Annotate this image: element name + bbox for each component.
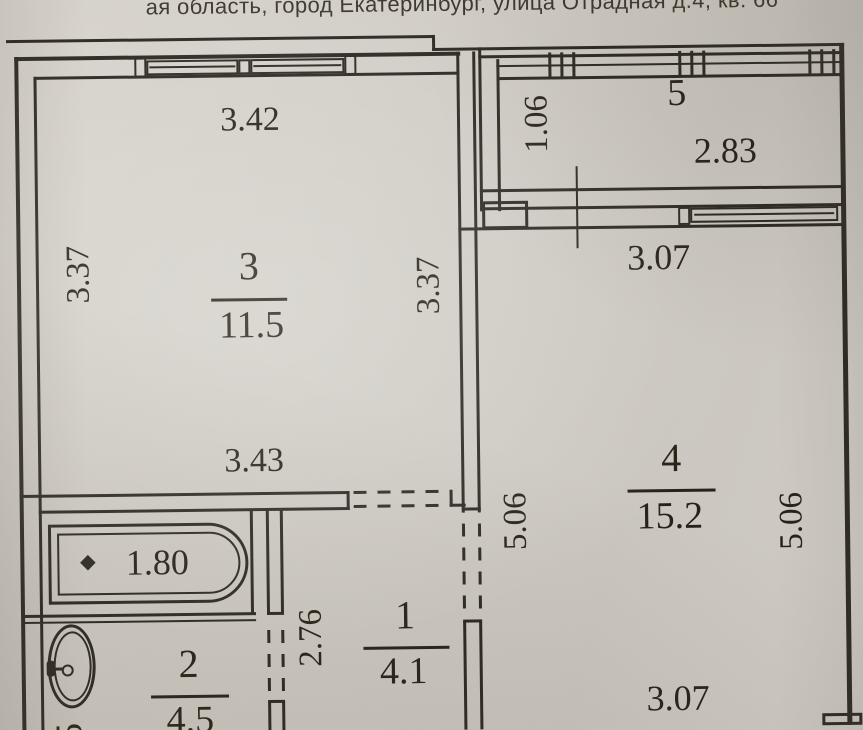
room2-fraction-bar xyxy=(151,694,229,698)
wall-left-outer xyxy=(14,57,26,730)
room4-fraction-bar xyxy=(628,489,716,493)
dim-room4-top: 3.07 xyxy=(598,238,718,277)
door-opening-room2 xyxy=(267,630,271,696)
wall-endcap xyxy=(347,491,350,510)
glazing-mullion-icon xyxy=(572,52,575,78)
dim-room3-top: 3.42 xyxy=(190,101,310,138)
window-jamb-icon xyxy=(134,57,146,77)
room3-fraction-bar xyxy=(211,298,287,302)
room3-area: 11.5 xyxy=(191,305,311,346)
dim-balcony-depth: 1.06 xyxy=(519,69,555,179)
room1-area: 4.1 xyxy=(354,652,454,693)
dim-balcony-width: 2.83 xyxy=(665,132,785,171)
balcony-number: 5 xyxy=(646,74,706,115)
glazing-mullion-icon xyxy=(820,49,823,75)
room1-fraction-bar xyxy=(363,646,449,650)
wall-room2-room1-b xyxy=(280,510,284,614)
dim-room3-left: 3.37 xyxy=(61,219,97,329)
door-opening-room2 xyxy=(281,630,285,696)
wall-room3-bottom-outer xyxy=(20,491,350,498)
wall-bath-partition xyxy=(23,612,256,618)
door-jamb xyxy=(450,504,466,507)
wall-room3-room4-a xyxy=(456,52,465,513)
wall-bath-right xyxy=(250,510,254,614)
room2-area: 4.5 xyxy=(140,700,240,730)
window-jamb-icon xyxy=(678,207,690,225)
wall-room2-room1-a xyxy=(268,702,271,730)
room1-number: 1 xyxy=(375,594,436,637)
glazing-mullion-icon xyxy=(560,52,563,78)
dim-edge-partial: 5 xyxy=(50,712,90,730)
dim-room4-left: 5.06 xyxy=(498,466,534,576)
door-opening-room3 xyxy=(354,490,450,494)
room4-number: 4 xyxy=(641,437,702,480)
room3-number: 3 xyxy=(209,245,290,288)
dim-room4-right: 5.06 xyxy=(774,466,810,576)
wall-room3-bottom-inner xyxy=(39,507,350,514)
balcony-glazing-line xyxy=(478,51,843,58)
floor-plan: ая область, город Екатеринбург, улица От… xyxy=(0,0,863,730)
wall-balcony-left-outer xyxy=(478,47,483,211)
dim-room1-left: 2.76 xyxy=(293,583,329,693)
dim-room3-bottom: 3.43 xyxy=(194,442,314,479)
wall-bath-partition xyxy=(23,619,256,624)
wall-room1-room4-a xyxy=(463,622,467,730)
wall-parapet-top xyxy=(432,43,844,51)
door-opening-room3 xyxy=(354,504,450,508)
wall-cap xyxy=(462,507,481,510)
floor-plan-photo: ая область, город Екатеринбург, улица От… xyxy=(0,0,863,730)
wall-room1-room4-b xyxy=(479,621,483,729)
wall-balcony-bottom xyxy=(480,185,844,192)
wall-top-overhang xyxy=(6,35,434,43)
bathtub-length-label: 1.80 xyxy=(102,544,212,583)
room4-area: 15.2 xyxy=(610,496,730,537)
wall-cap xyxy=(267,612,284,615)
dim-room4-bottom: 3.07 xyxy=(618,679,738,718)
address-header: ая область, город Екатеринбург, улица От… xyxy=(145,0,778,20)
door-opening-room4 xyxy=(478,523,482,617)
wall-room2-room1-b xyxy=(282,702,285,730)
room2-number: 2 xyxy=(158,643,219,686)
wall-left-inner xyxy=(33,77,44,730)
wall-room2-room1-a xyxy=(266,510,270,614)
dim-room3-right: 3.37 xyxy=(411,230,447,340)
wall-right-outer xyxy=(839,43,852,725)
radiator-mark xyxy=(822,713,862,725)
glazing-mullion-icon xyxy=(808,49,811,75)
wall-step xyxy=(482,201,528,230)
window-mullion-icon xyxy=(238,59,250,74)
window-jamb-icon xyxy=(344,55,356,75)
glazing-mullion-icon xyxy=(832,49,835,75)
door-opening-room4 xyxy=(462,524,466,618)
sink-tap-icon xyxy=(54,668,64,671)
